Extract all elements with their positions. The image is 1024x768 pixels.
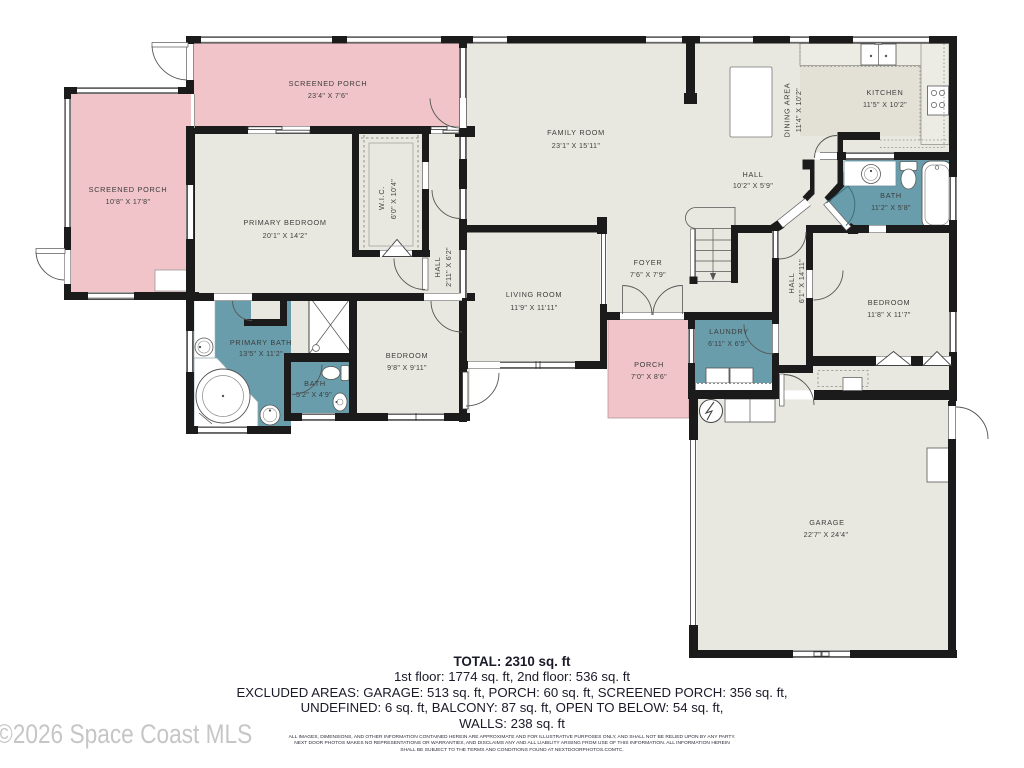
svg-text:LIVING ROOM: LIVING ROOM <box>506 290 562 299</box>
svg-text:20'1" X 14'2": 20'1" X 14'2" <box>263 232 308 240</box>
svg-text:11'2" X 5'8": 11'2" X 5'8" <box>871 204 911 212</box>
svg-text:HALL: HALL <box>787 272 796 293</box>
svg-text:BEDROOM: BEDROOM <box>868 298 911 307</box>
svg-text:PRIMARY BEDROOM: PRIMARY BEDROOM <box>243 218 326 227</box>
svg-text:6'0" X 10'4": 6'0" X 10'4" <box>390 179 398 219</box>
svg-text:7'0" X 8'6": 7'0" X 8'6" <box>631 373 667 381</box>
svg-text:BATH: BATH <box>304 379 326 388</box>
svg-text:KITCHEN: KITCHEN <box>867 88 904 97</box>
svg-text:W.I.C.: W.I.C. <box>377 186 386 210</box>
svg-text:11'4" X 10'2": 11'4" X 10'2" <box>795 88 803 132</box>
svg-text:10'2" X 5'9": 10'2" X 5'9" <box>733 182 773 190</box>
svg-text:2'11" X 6'2": 2'11" X 6'2" <box>445 247 453 287</box>
svg-text:5'2" X 4'9": 5'2" X 4'9" <box>296 391 332 399</box>
svg-text:9'8" X 9'11": 9'8" X 9'11" <box>387 364 427 372</box>
svg-text:23'4" X 7'6": 23'4" X 7'6" <box>308 92 348 100</box>
svg-text:BATH: BATH <box>880 191 902 200</box>
svg-text:SCREENED PORCH: SCREENED PORCH <box>289 79 368 88</box>
svg-text:PRIMARY BATH: PRIMARY BATH <box>230 338 292 347</box>
svg-text:13'5" X 11'2": 13'5" X 11'2" <box>239 350 283 358</box>
svg-text:22'7" X 24'4": 22'7" X 24'4" <box>804 531 849 539</box>
svg-text:6'1" X 14'11": 6'1" X 14'11" <box>798 259 806 303</box>
svg-text:DINING AREA: DINING AREA <box>783 83 792 138</box>
svg-text:GARAGE: GARAGE <box>809 518 844 527</box>
svg-text:SCREENED PORCH: SCREENED PORCH <box>89 185 168 194</box>
svg-text:LAUNDRY: LAUNDRY <box>709 327 749 336</box>
svg-text:23'1" X 15'11": 23'1" X 15'11" <box>552 142 601 150</box>
svg-text:11'8" X 11'7": 11'8" X 11'7" <box>867 311 911 319</box>
svg-text:FAMILY ROOM: FAMILY ROOM <box>547 128 605 137</box>
svg-text:PORCH: PORCH <box>634 360 664 369</box>
svg-text:BEDROOM: BEDROOM <box>386 351 429 360</box>
svg-text:11'9" X 11'11": 11'9" X 11'11" <box>510 304 557 312</box>
svg-text:HALL: HALL <box>433 256 442 277</box>
svg-text:FOYER: FOYER <box>634 258 663 267</box>
svg-text:HALL: HALL <box>742 170 763 179</box>
svg-text:11'5" X 10'2": 11'5" X 10'2" <box>863 101 907 109</box>
svg-text:6'11" X 6'5": 6'11" X 6'5" <box>708 340 748 348</box>
svg-text:10'8" X 17'8": 10'8" X 17'8" <box>106 198 151 206</box>
svg-text:7'6" X 7'9": 7'6" X 7'9" <box>630 271 666 279</box>
